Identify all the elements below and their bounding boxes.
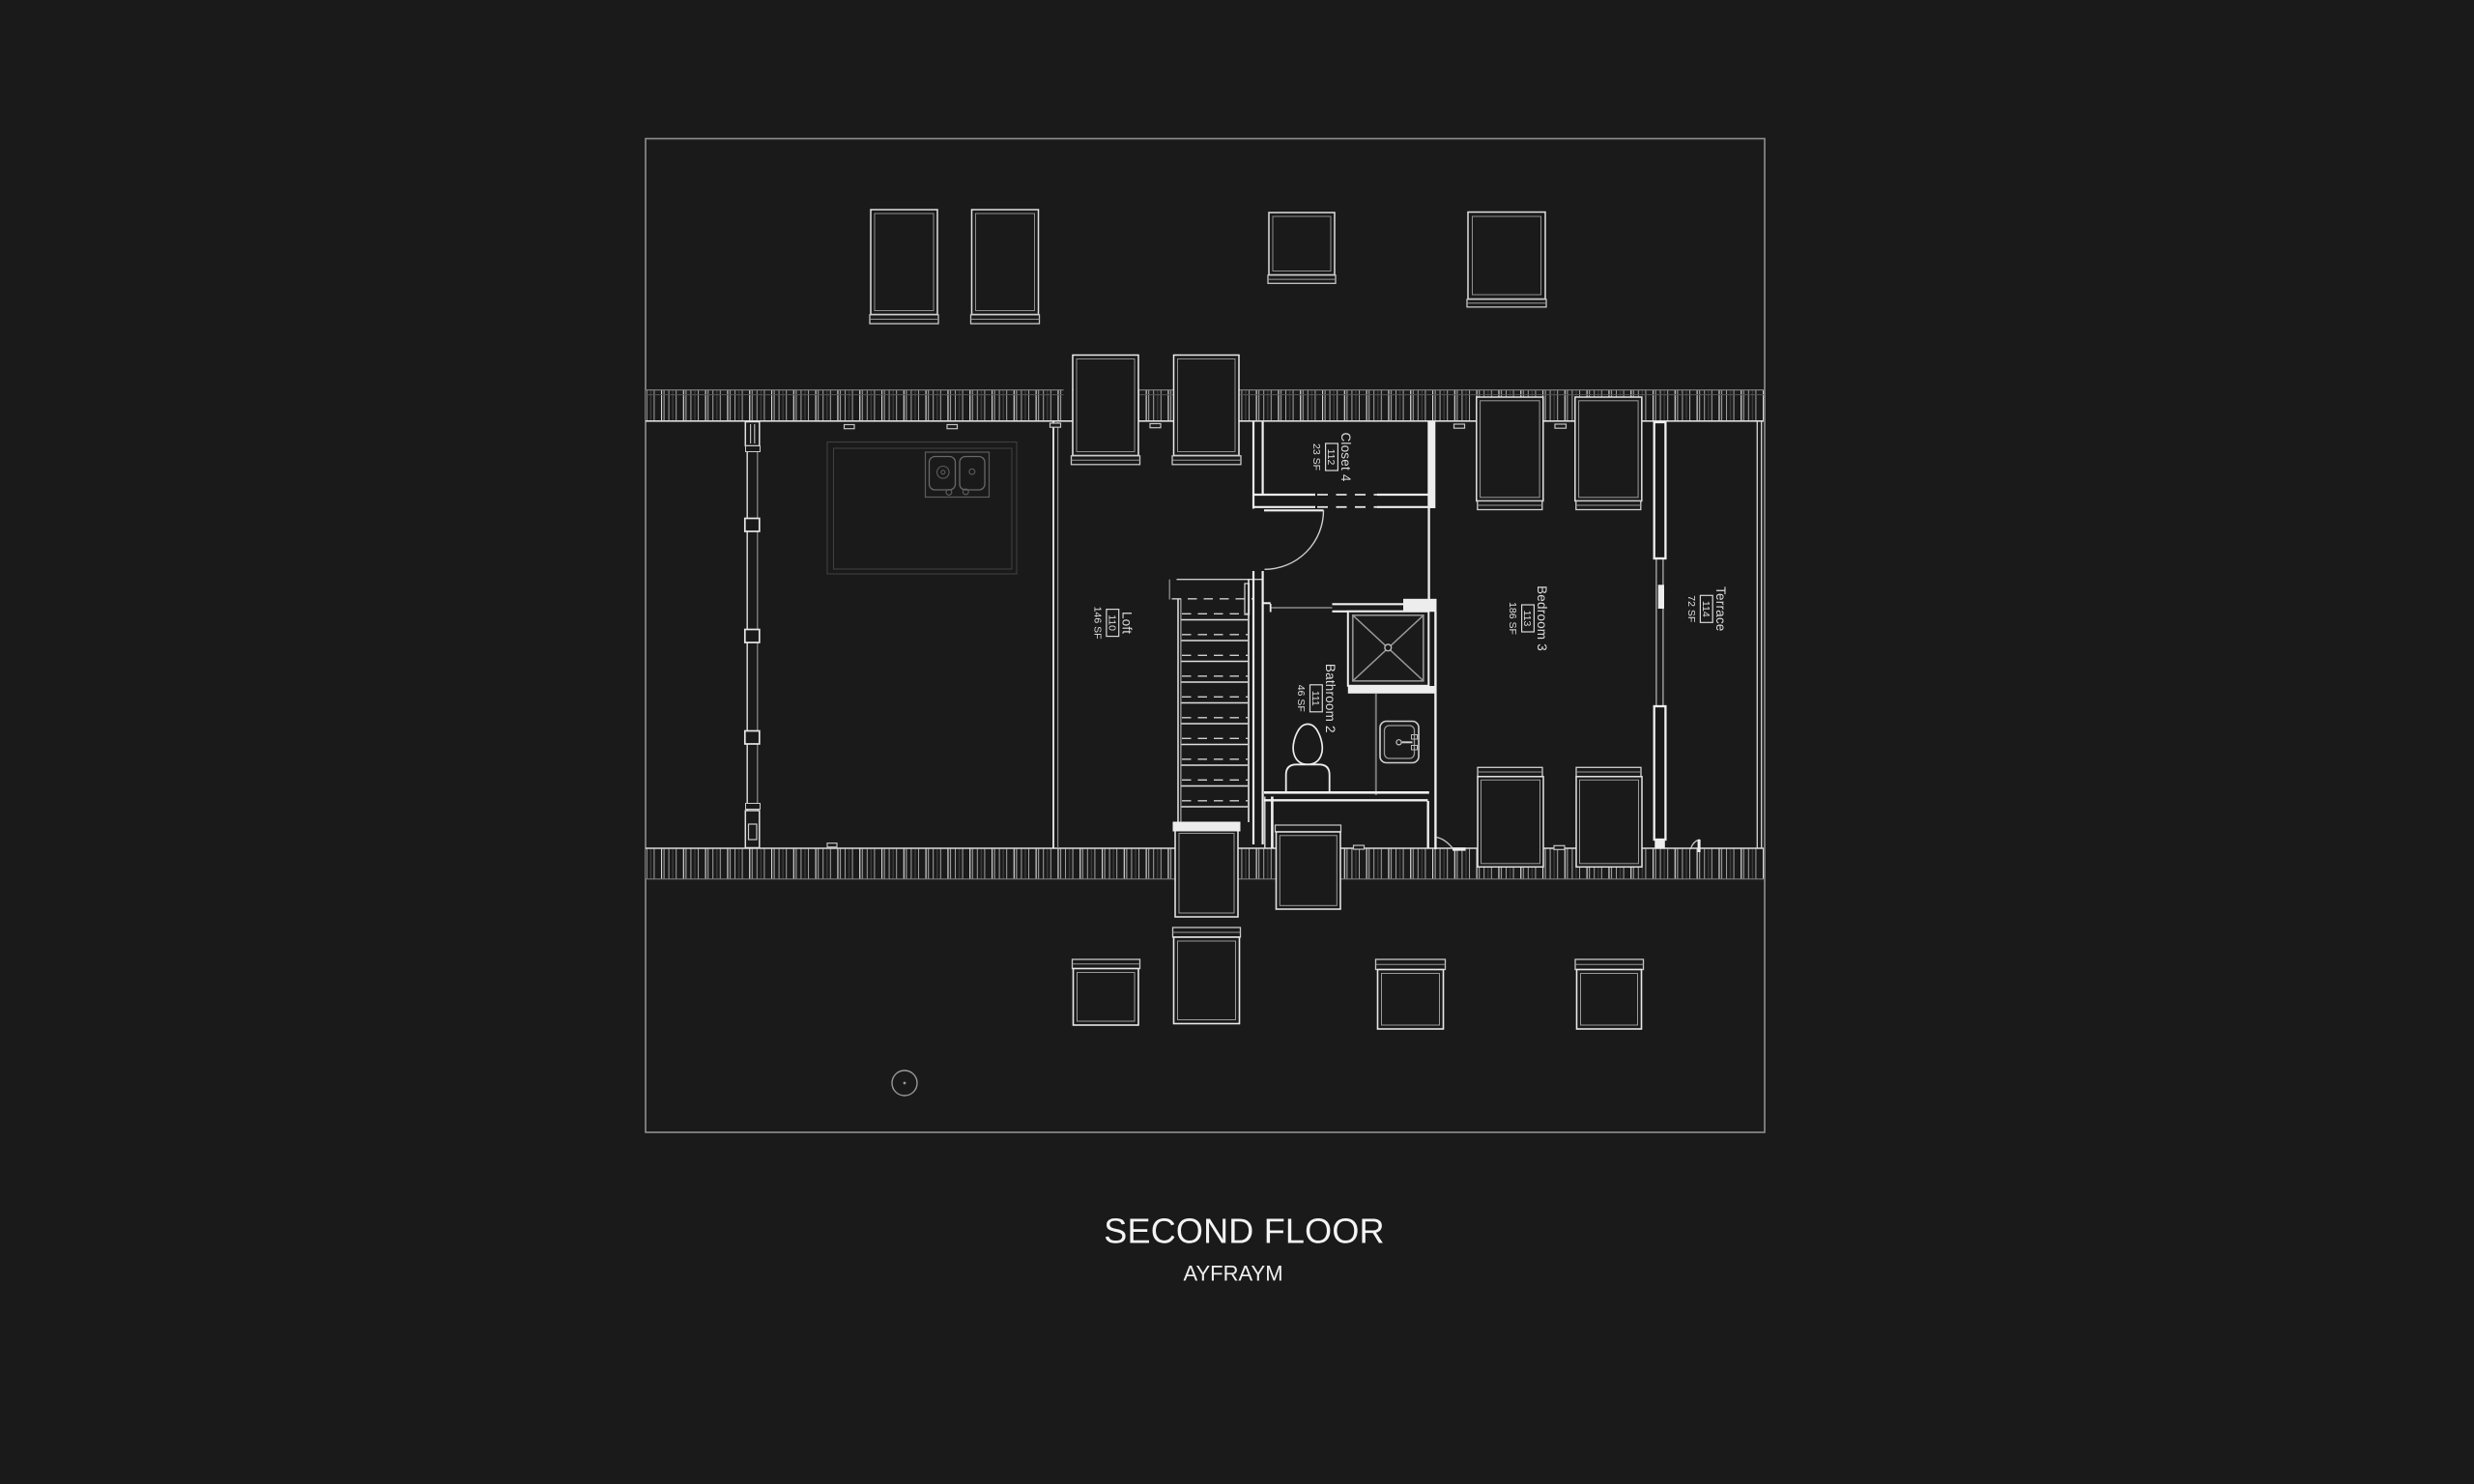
svg-text:114: 114	[1700, 601, 1712, 617]
svg-text:113: 113	[1521, 611, 1533, 627]
svg-text:23 SF: 23 SF	[1310, 443, 1322, 471]
svg-text:Loft: Loft	[1119, 612, 1134, 634]
svg-text:186 SF: 186 SF	[1507, 602, 1518, 635]
svg-text:46 SF: 46 SF	[1295, 685, 1307, 712]
svg-text:Bathroom 2: Bathroom 2	[1323, 664, 1338, 733]
svg-text:Terrace: Terrace	[1713, 586, 1728, 631]
svg-text:111: 111	[1309, 691, 1321, 706]
svg-text:Closet 4: Closet 4	[1338, 432, 1353, 481]
svg-text:72 SF: 72 SF	[1685, 595, 1697, 622]
svg-text:112: 112	[1325, 449, 1337, 466]
svg-text:AYFRAYM: AYFRAYM	[1183, 1262, 1282, 1286]
svg-text:Bedroom 3: Bedroom 3	[1535, 585, 1549, 651]
svg-text:SECOND FLOOR: SECOND FLOOR	[1104, 1212, 1384, 1251]
svg-text:110: 110	[1107, 614, 1118, 631]
svg-text:146 SF: 146 SF	[1091, 607, 1103, 640]
